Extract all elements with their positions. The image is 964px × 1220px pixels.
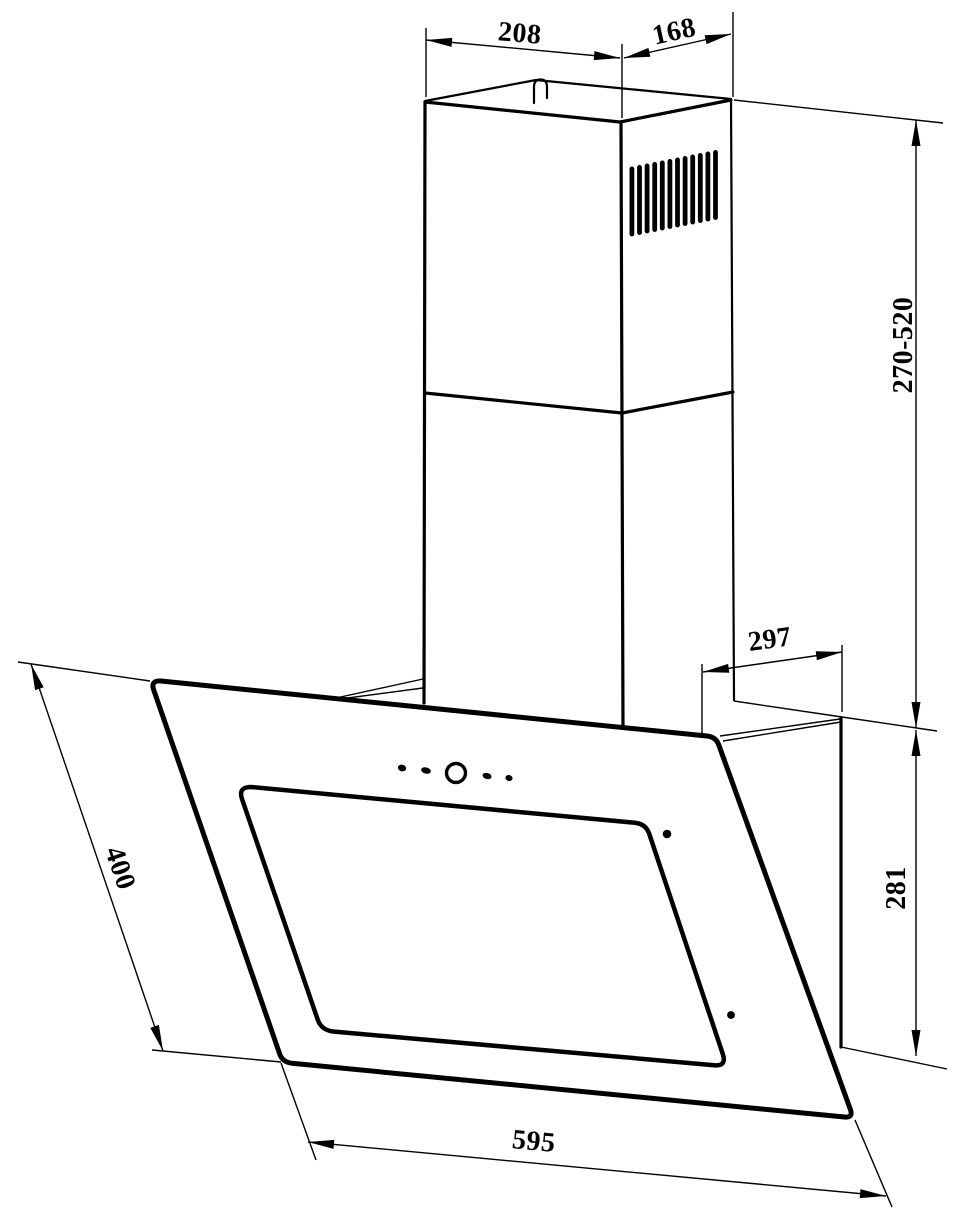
top-plate-rear-edge [734,701,842,717]
dimension-label-270-520: 270-520 [888,297,919,394]
dimension-label-208: 208 [497,16,543,51]
dimension-label-168: 168 [650,12,699,52]
glass-panel [153,681,851,1117]
arrowhead-right [860,1189,886,1198]
top-plate-left-edge-a [336,679,423,698]
arrowhead-bottom [150,1025,163,1051]
arrowhead-right [705,34,731,44]
cooker-hood-dimension-drawing: 208 168 270-520 297 281 [0,0,964,1220]
extension-line-bottom [841,1047,947,1069]
extension-line-left [281,1063,316,1160]
chimney-front-right-edge [621,122,623,727]
arrowhead-bottom [912,1030,921,1056]
glass-screw-upper [663,830,672,839]
top-plate-left-edge-b [340,688,423,699]
extension-line-bottom [152,1050,281,1062]
extension-line-bottom [842,717,937,731]
dimension-duct-side-depth: 168 [624,12,733,97]
arrowhead-top [31,664,44,690]
glass-outer-outline [153,681,851,1117]
dimension-label-400: 400 [98,843,141,894]
arrowhead-right [594,51,620,60]
vent-grille [630,150,718,237]
arrowhead-left [703,664,729,673]
arrowhead-bottom [912,702,921,728]
arrowhead-top [912,730,921,756]
dimension-top-rear-depth: 297 [702,621,842,733]
dimension-duct-front-width: 208 [426,16,622,118]
mounting-tab [534,80,547,104]
extension-line-top [734,100,943,123]
chimney-left-edge [424,102,425,703]
arrowhead-left [624,48,650,58]
glass-screw-lower [727,1011,735,1019]
chimney-back-left-top-edge [425,80,536,101]
arrowhead-left [426,38,452,47]
dimension-label-595: 595 [511,1124,557,1159]
dimension-rear-height: 281 [841,730,947,1069]
arrowhead-right [816,651,842,660]
chimney-seam-front [425,393,622,413]
top-plate-right-rim-outer [720,719,840,736]
arrowhead-top [912,120,921,146]
chimney-seam-right [622,392,733,413]
dimension-line [308,1142,886,1196]
chimney-back-top-edge [536,80,731,99]
dimension-label-281: 281 [881,866,912,910]
chimney-right-top-edge [620,100,731,122]
top-plate-right-rim-inner [723,722,841,741]
chimney-rear-right-edge [731,100,734,700]
dimension-line [31,664,163,1051]
drawing-canvas: 208 168 270-520 297 281 [0,0,964,1220]
dimension-label-297: 297 [746,621,793,658]
chimney-front-top-edge [425,102,620,122]
